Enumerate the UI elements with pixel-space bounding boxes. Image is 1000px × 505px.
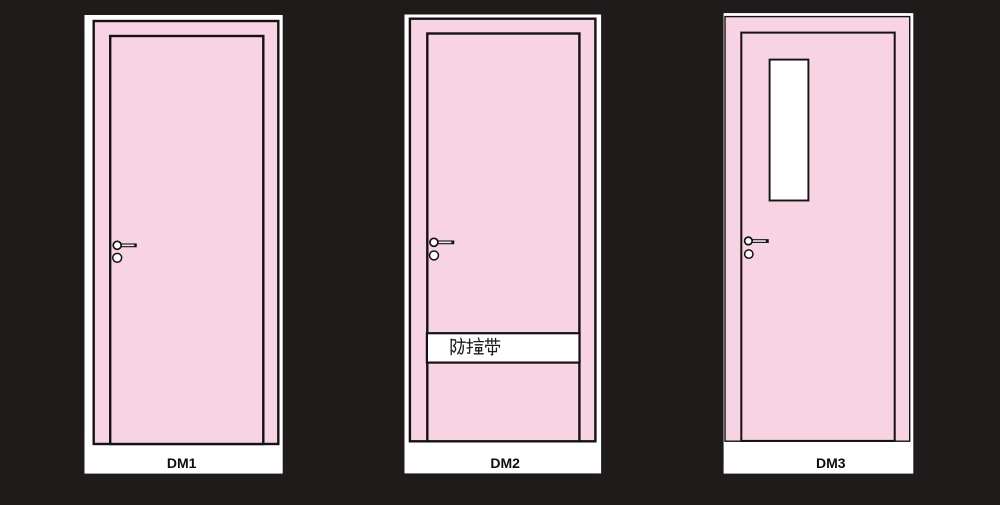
svg-text:DM1: DM1 <box>167 455 197 471</box>
svg-text:DM2: DM2 <box>490 455 520 471</box>
svg-text:DM3: DM3 <box>816 455 846 471</box>
